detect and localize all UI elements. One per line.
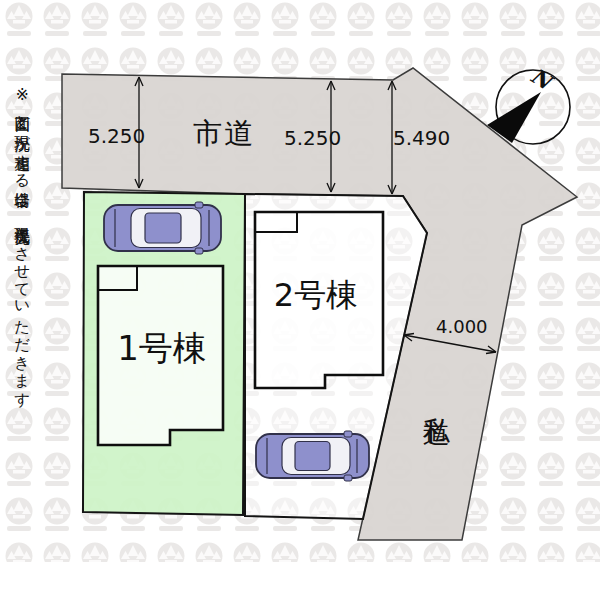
private-road-width-value: 4.000 [436,318,484,337]
dimension-left-value: 5.250 [88,126,136,147]
car-1-icon [104,202,221,254]
building-2-label: 2号棟 [256,279,376,313]
private-road-label: 私道 [422,396,450,402]
site-plan-canvas: 市道 5.250 5.250 5.490 4.000 1号棟 2号棟 私道 N … [0,0,600,600]
dimension-middle-value: 5.250 [284,128,332,149]
city-road-label: 市道 [186,118,262,148]
disclaimer-note: ※図面と現況が相違する場合は、現況優先とさせていただきます [14,86,30,516]
building-1-label: 1号棟 [102,331,222,367]
car-2-icon [256,431,369,481]
dimension-right-value: 5.490 [393,128,441,149]
